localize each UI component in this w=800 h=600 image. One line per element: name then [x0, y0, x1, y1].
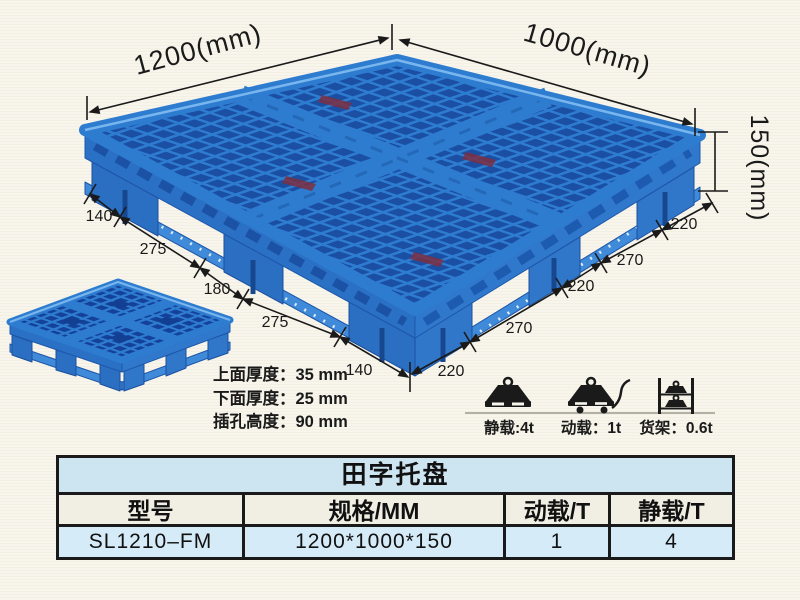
table-title: 田字托盘 — [59, 458, 732, 495]
col-header-model: 型号 — [59, 495, 245, 527]
note-fork-height: 插孔高度：90 mm — [213, 411, 348, 431]
col-header-dynamic-load: 动载/T — [506, 495, 611, 527]
static-load-label: 静载:4t — [484, 418, 534, 437]
small-pallet-illustration — [10, 282, 230, 391]
spec-table: 田字托盘 型号 规格/MM 动载/T 静载/T SL1210–FM 1200*1… — [56, 455, 735, 560]
dim-label: 275 — [140, 241, 167, 258]
dim-label: 270 — [617, 252, 644, 269]
table-row: SL1210–FM 1200*1000*150 1 4 — [59, 527, 732, 557]
product-sheet: 1200(mm) 1000(mm) 150(mm) 140 275 180 27… — [0, 0, 800, 600]
dim-label: 140 — [346, 362, 373, 379]
height-dimension-label: 150(mm) — [745, 114, 773, 221]
note-top-thickness: 上面厚度：35 mm — [213, 364, 348, 384]
dim-label: 270 — [506, 320, 533, 337]
dynamic-load-label: 动载：1t — [561, 419, 621, 437]
cell-spec: 1200*1000*150 — [245, 527, 506, 557]
col-header-static-load: 静载/T — [611, 495, 732, 527]
dim-label: 220 — [438, 363, 465, 380]
cell-model: SL1210–FM — [59, 527, 245, 557]
rack-load-icon — [658, 378, 694, 414]
dim-label: 220 — [671, 216, 698, 233]
load-ratings: 静载:4t 动载：1t 货架：0.6t — [465, 378, 715, 437]
static-load-icon — [485, 378, 531, 407]
dim-label: 180 — [204, 281, 231, 298]
width-dimension-label: 1000(mm) — [520, 17, 654, 82]
dim-label: 220 — [568, 278, 595, 295]
dynamic-load-icon — [568, 378, 630, 414]
note-bottom-thickness: 下面厚度：25 mm — [213, 388, 348, 408]
length-dimension-label: 1200(mm) — [131, 18, 265, 81]
cell-static-load: 4 — [611, 527, 732, 557]
thickness-notes: 上面厚度：35 mm 下面厚度：25 mm 插孔高度：90 mm — [213, 364, 348, 431]
pallet-scene: 1200(mm) 1000(mm) 150(mm) 140 275 180 27… — [0, 0, 800, 450]
col-header-spec: 规格/MM — [245, 495, 506, 527]
dim-label: 140 — [86, 208, 113, 225]
table-header-row: 型号 规格/MM 动载/T 静载/T — [59, 495, 732, 527]
rack-load-label: 货架：0.6t — [639, 418, 712, 437]
cell-dynamic-load: 1 — [506, 527, 611, 557]
dim-label: 275 — [262, 314, 289, 331]
